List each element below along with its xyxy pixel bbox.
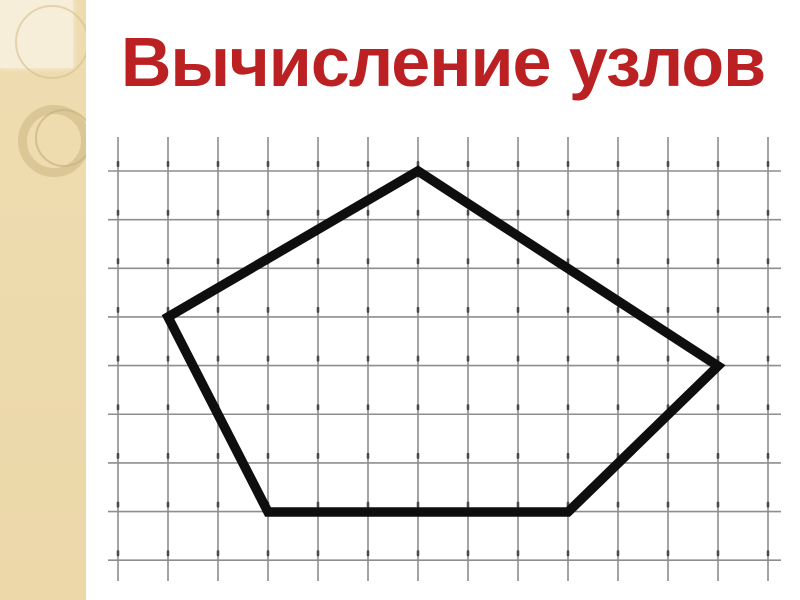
pentagon-shape [168, 171, 718, 512]
slide: Вычисление узлов [0, 0, 800, 600]
grid-figure [0, 0, 800, 600]
